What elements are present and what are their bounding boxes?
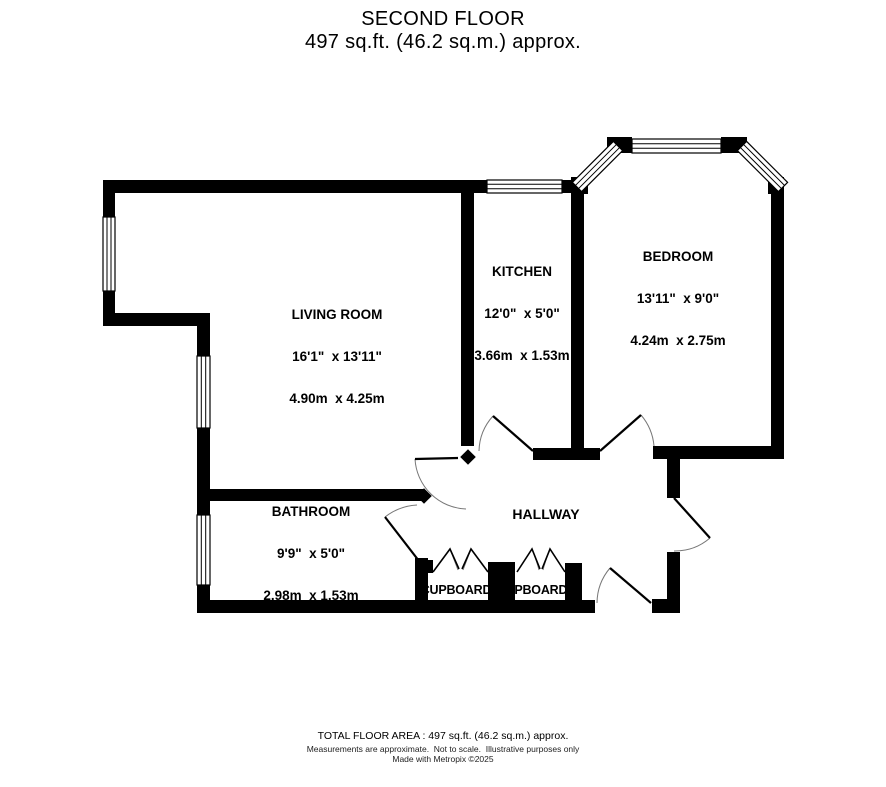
floorplan-page: SECOND FLOOR 497 sq.ft. (46.2 sq.m.) app… [0,0,886,787]
credit-text: Made with Metropix ©2025 [0,754,886,764]
wall-hall-right-upper [667,446,680,498]
bedroom-label: BEDROOM 13'11" x 9'0" 4.24m x 2.75m [630,222,725,376]
side-door [674,498,710,538]
floorplan-svg [0,0,886,787]
wall-top-left [103,180,487,193]
hallway-label: HALLWAY [512,479,579,549]
window-kitchen-top [487,180,562,193]
wall-kitchen-left [461,193,474,446]
room-dims-imperial: 12'0" x 5'0" [474,307,569,321]
room-dims-metric: 4.24m x 2.75m [630,334,725,348]
wall-bottom [197,600,595,613]
swing-entry-door [597,568,610,603]
window-bay-left [572,141,622,191]
wall-step [103,313,208,326]
room-dims-imperial: 13'11" x 9'0" [630,292,725,306]
room-dims-metric: 3.66m x 1.53m [474,349,569,363]
plan-footer: TOTAL FLOOR AREA : 497 sq.ft. (46.2 sq.m… [0,729,886,764]
bathroom-door [385,517,419,561]
cupboard1-label: CUPBOARD [421,583,492,597]
swing-kitchen-door [479,416,493,451]
kitchen-door [493,416,533,451]
jamb-cap-kitchen-wall [460,449,476,465]
cupboard2-label: CUPBOARD [497,583,568,597]
wall-inner-left-b [197,428,210,515]
wall-outer-left-upper [103,180,115,220]
room-name: BEDROOM [630,250,725,264]
room-name: BATHROOM [263,505,358,519]
entry-door [610,568,651,603]
wall-bedroom-right [771,180,784,459]
room-dims-imperial: 16'1" x 13'11" [289,350,384,364]
room-dims-metric: 4.90m x 4.25m [289,392,384,406]
window-bay-top [632,139,721,153]
room-dims-metric: 2.98m x 1.53m [263,589,358,603]
living-room-label: LIVING ROOM 16'1" x 13'11" 4.90m x 4.25m [289,280,384,434]
window-bathroom [197,515,210,585]
room-name: HALLWAY [512,507,579,521]
kitchen-label: KITCHEN 12'0" x 5'0" 3.66m x 1.53m [474,237,569,391]
living-room-door [415,458,458,459]
room-name: LIVING ROOM [289,308,384,322]
cupboard1-bifold-door [433,549,488,572]
swing-bedroom-door [641,415,654,446]
room-name: KITCHEN [474,265,569,279]
room-dims-imperial: 9'9" x 5'0" [263,547,358,561]
window-living-inner-left [197,356,210,428]
wall-hall-top-stub [533,448,600,460]
swing-bathroom-door [385,505,417,517]
wall-cupboard1-cap [415,560,433,573]
swing-side-door [674,538,710,551]
cupboard2-bifold-door [517,549,565,572]
wall-hall-bottom-corner [652,599,680,613]
total-floor-area: TOTAL FLOOR AREA : 497 sq.ft. (46.2 sq.m… [0,729,886,744]
bedroom-door [600,415,641,451]
window-bay-right [737,141,787,191]
window-living-outer-left [103,217,115,291]
bathroom-label: BATHROOM 9'9" x 5'0" 2.98m x 1.53m [263,477,358,631]
wall-kitchen-right [571,180,584,460]
disclaimer-text: Measurements are approximate. Not to sca… [0,744,886,754]
wall-inner-left-a [197,313,210,357]
